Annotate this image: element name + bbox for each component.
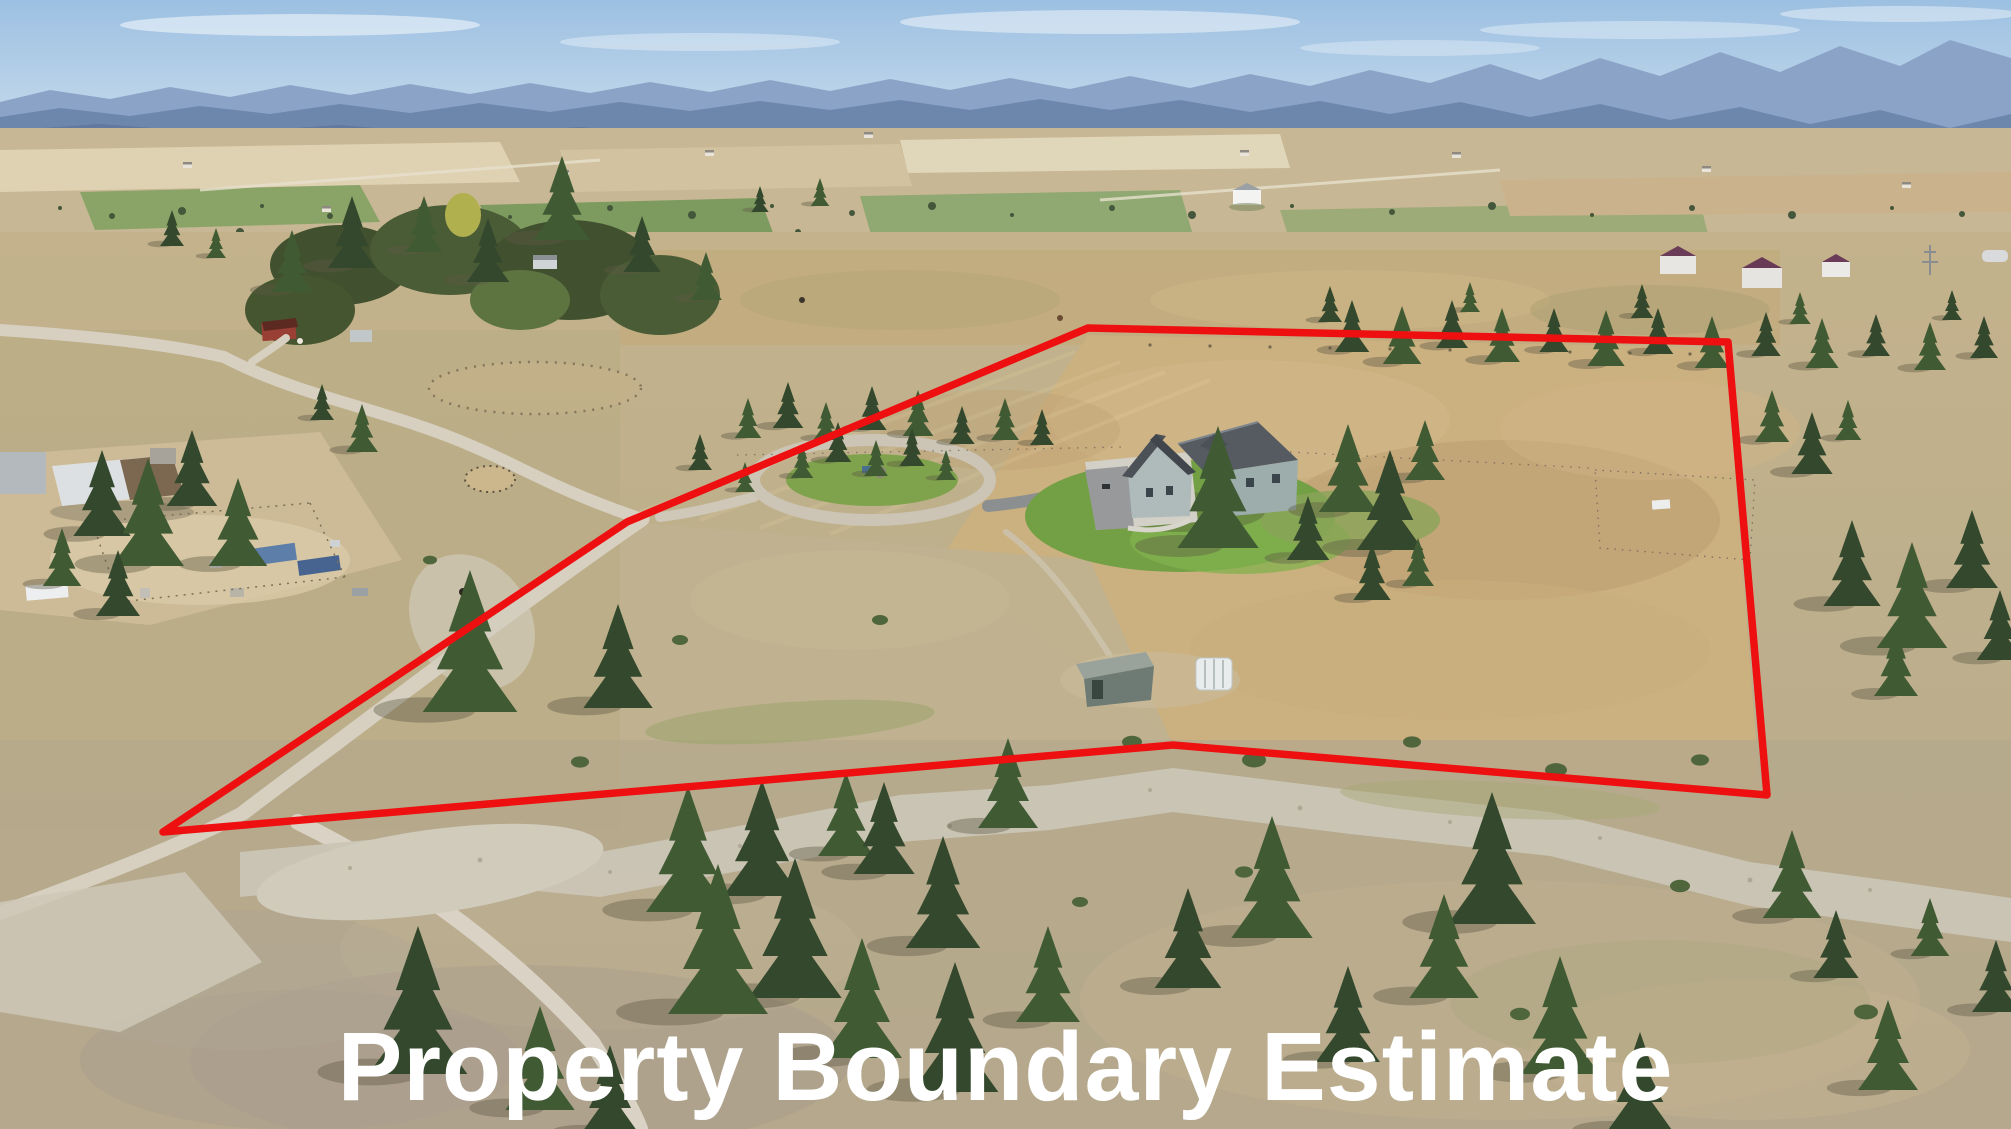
bush (1235, 866, 1253, 877)
distant-house-roof (705, 150, 714, 153)
distant-house-roof (1702, 166, 1711, 169)
distant-tree-dot (1890, 206, 1894, 210)
distant-tree-dot (58, 206, 62, 210)
oval-corral (429, 362, 641, 414)
bush (672, 635, 688, 645)
distant-tree-dot (688, 211, 696, 219)
distant-house-roof (1452, 152, 1461, 155)
big-barn (50, 455, 194, 523)
small-hut (150, 448, 176, 464)
outbuilding (350, 330, 372, 342)
distant-house-roof (322, 206, 331, 209)
distant-tree-dot (928, 202, 936, 210)
distant-house-roof (1240, 150, 1249, 153)
fence-post (1568, 350, 1571, 353)
bush (1403, 736, 1421, 747)
distant-tree-dot (849, 210, 855, 216)
yellow-deciduous-tree (445, 193, 481, 237)
distant-tree-dot (1590, 213, 1594, 217)
distant-tree-dot (109, 213, 115, 219)
bush (423, 556, 437, 565)
bush (1691, 754, 1709, 765)
distant-tree-dot (1389, 209, 1395, 215)
fence-post (1148, 343, 1151, 346)
round-pen (465, 466, 515, 492)
distant-tree-dot (260, 204, 264, 208)
bush (1510, 1008, 1530, 1020)
distant-tree-dot (178, 207, 186, 215)
bush (872, 615, 888, 625)
distant-house-roof (1902, 182, 1911, 185)
white-horse (297, 338, 303, 344)
parked-object (1102, 484, 1110, 489)
horse-trailer (1652, 499, 1671, 509)
fence-post (1208, 344, 1211, 347)
distant-tree-dot (1788, 211, 1796, 219)
distant-house-roof (183, 162, 192, 165)
bush (1854, 1005, 1878, 1020)
aerial-property-photo: Property Boundary Estimate (0, 0, 2011, 1129)
distant-tree-dot (1290, 204, 1294, 208)
bush (1670, 880, 1690, 892)
machine-shed (0, 452, 46, 494)
bush (1072, 897, 1088, 907)
distant-tree-dot (1689, 205, 1695, 211)
fence-post (1388, 347, 1391, 350)
distant-tree-dot (770, 204, 774, 208)
distant-tree-dot (607, 205, 613, 211)
fence-post (1268, 345, 1271, 348)
distant-house-roof (864, 132, 873, 135)
distant-tree-dot (1010, 213, 1014, 217)
distant-tree-dot (1109, 205, 1115, 211)
gray-farmhouse (533, 255, 557, 269)
distant-tree-dot (508, 215, 512, 219)
fence-post (1688, 352, 1691, 355)
bush (571, 756, 589, 767)
distant-tree-dot (1188, 211, 1196, 219)
red-barn (261, 318, 298, 341)
white-hoop-building (1196, 658, 1232, 690)
aerial-scene (0, 0, 2011, 1129)
distant-tree-dot (1959, 211, 1965, 217)
distant-tree-dot (327, 213, 333, 219)
distant-tree-dot (1488, 202, 1496, 210)
